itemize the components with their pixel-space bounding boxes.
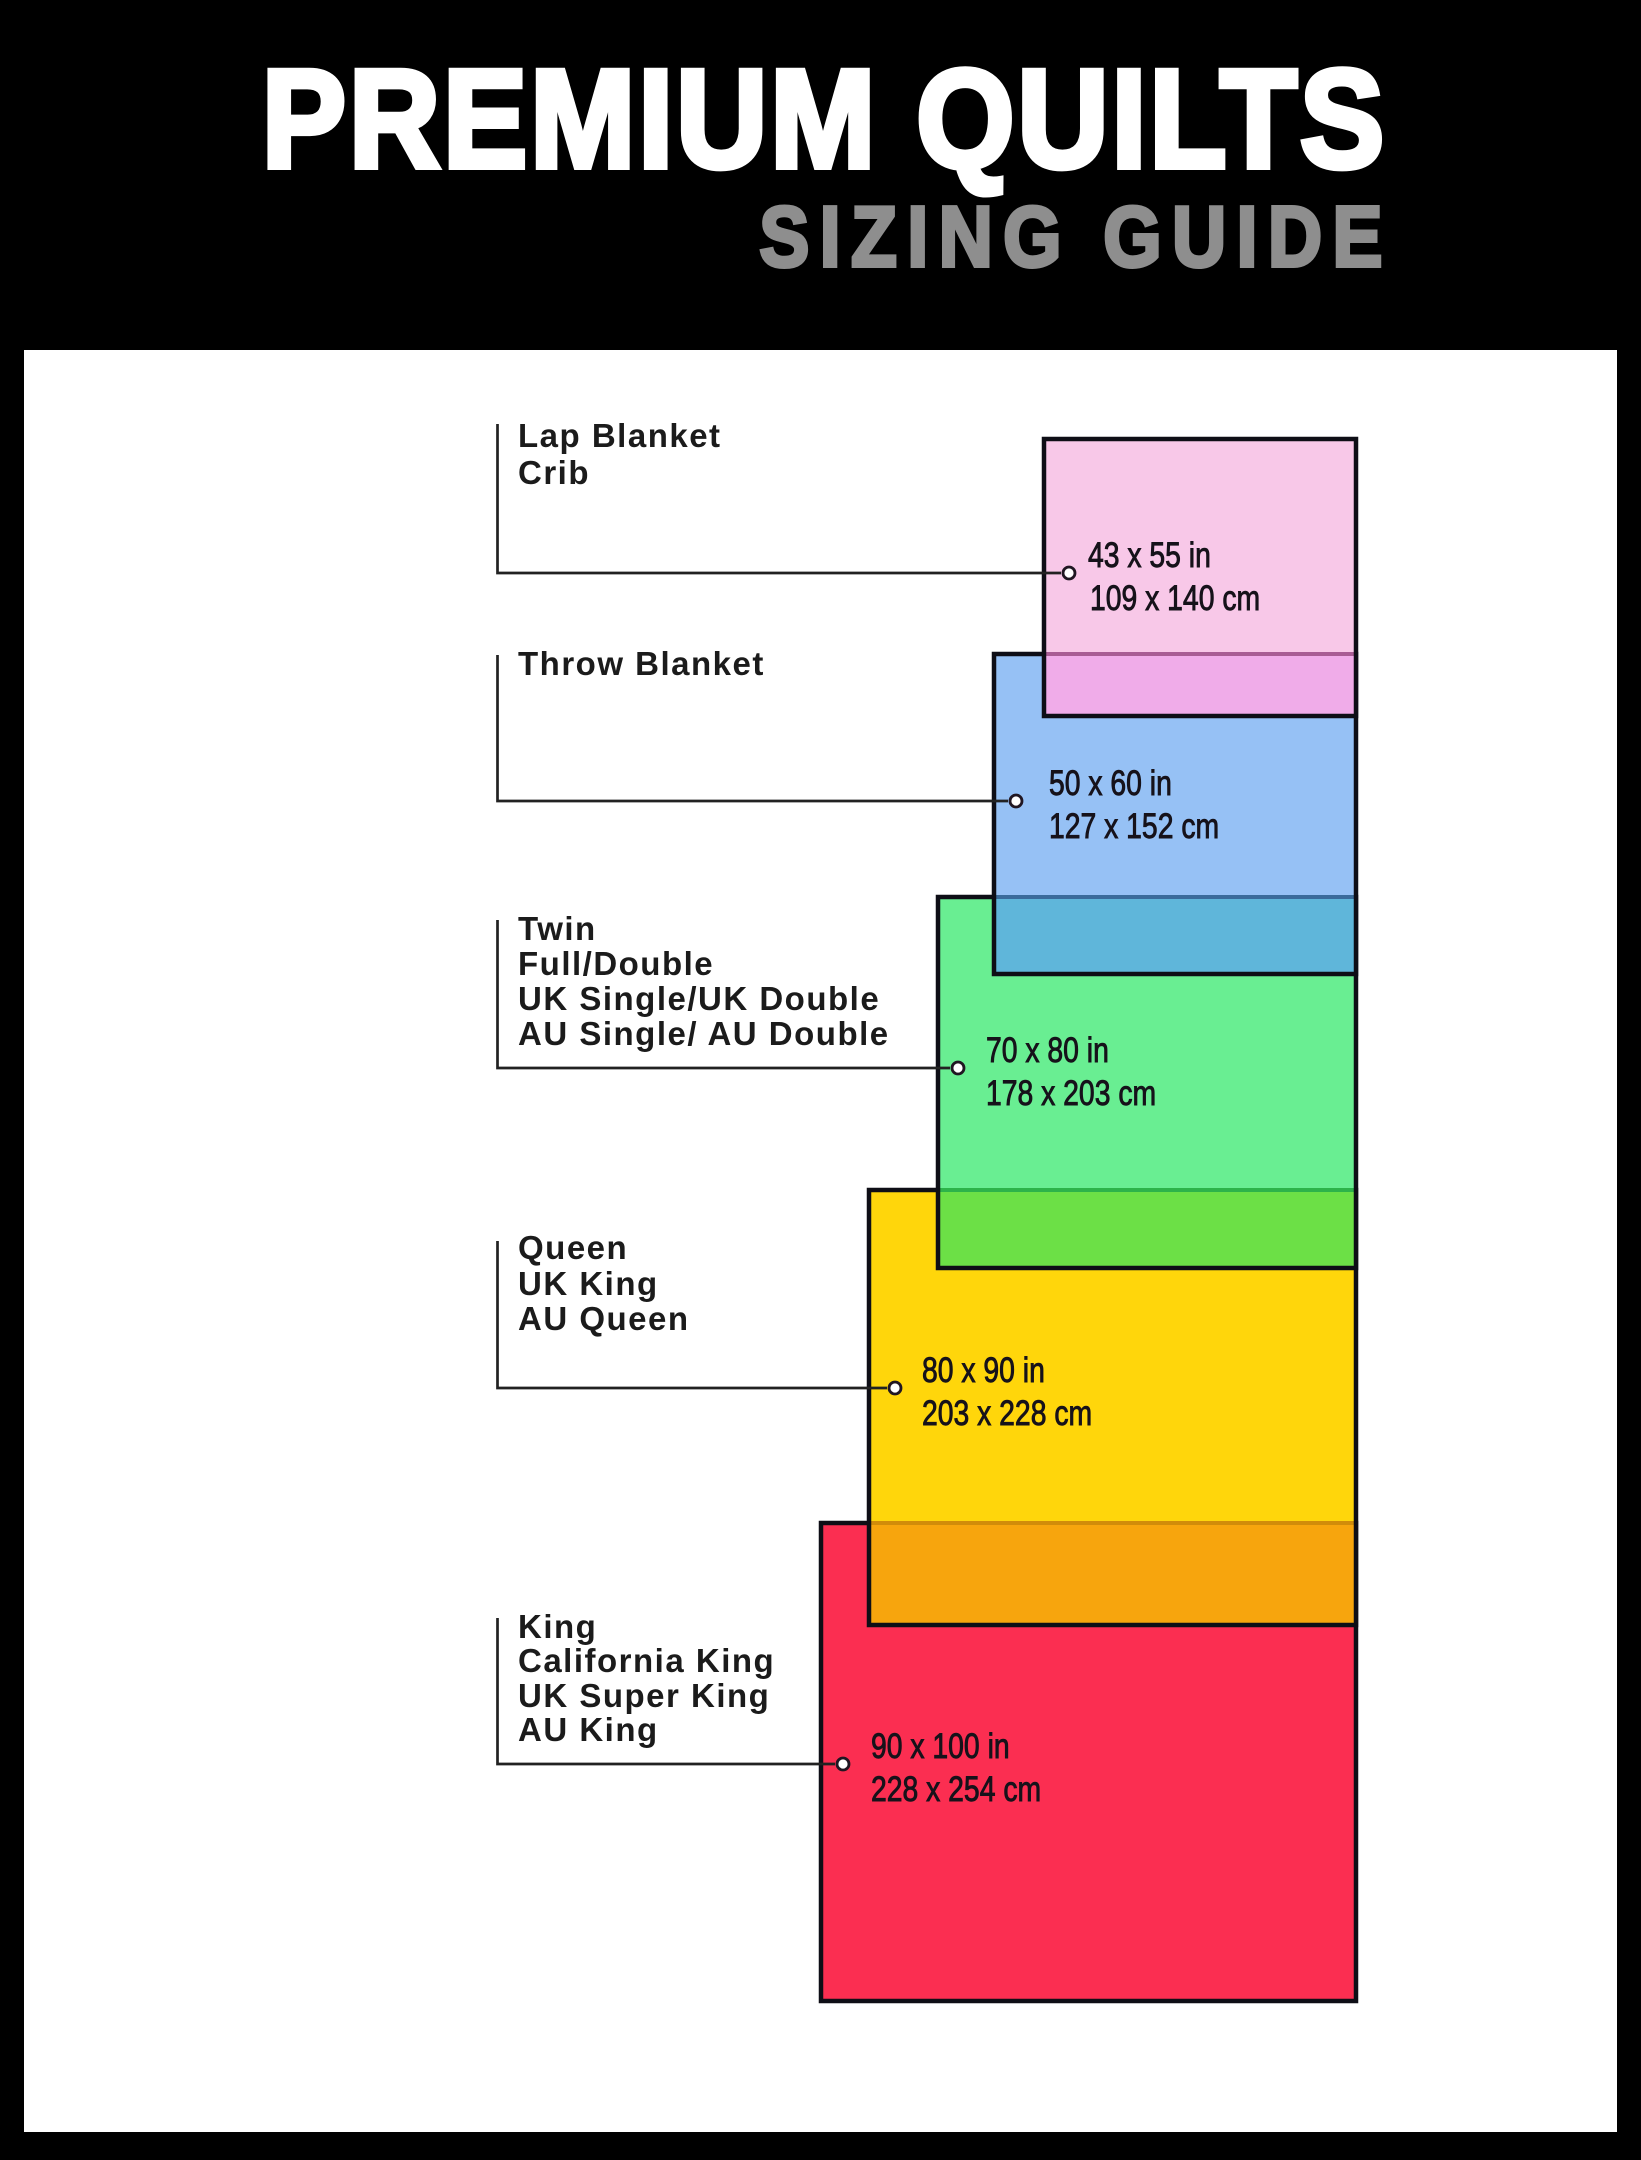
svg-text:178 x 203 cm: 178 x 203 cm: [986, 1073, 1156, 1113]
svg-text:127 x 152 cm: 127 x 152 cm: [1049, 806, 1219, 846]
svg-text:90 x 100 in: 90 x 100 in: [871, 1726, 1010, 1766]
svg-text:228 x 254 cm: 228 x 254 cm: [871, 1769, 1041, 1809]
svg-text:AU Single/ AU Double: AU Single/ AU Double: [518, 1015, 890, 1052]
svg-text:Throw Blanket: Throw Blanket: [518, 645, 765, 682]
svg-text:UK Super King: UK Super King: [518, 1677, 770, 1714]
svg-text:SIZING GUIDE: SIZING GUIDE: [759, 190, 1393, 284]
svg-text:Queen: Queen: [518, 1229, 628, 1266]
svg-text:70 x 80 in: 70 x 80 in: [986, 1030, 1109, 1070]
svg-text:43 x 55 in: 43 x 55 in: [1088, 535, 1211, 575]
svg-text:50 x 60 in: 50 x 60 in: [1049, 763, 1172, 803]
svg-text:UK Single/UK Double: UK Single/UK Double: [518, 980, 880, 1017]
svg-text:UK King: UK King: [518, 1265, 659, 1302]
svg-text:80 x 90 in: 80 x 90 in: [922, 1350, 1045, 1390]
svg-text:PREMIUM QUILTS: PREMIUM QUILTS: [262, 41, 1387, 197]
svg-text:203 x 228 cm: 203 x 228 cm: [922, 1393, 1092, 1433]
svg-text:California King: California King: [518, 1642, 775, 1679]
svg-text:Crib: Crib: [518, 454, 590, 491]
svg-text:King: King: [518, 1608, 597, 1645]
svg-text:Full/Double: Full/Double: [518, 945, 714, 982]
svg-text:AU King: AU King: [518, 1711, 659, 1748]
svg-text:AU Queen: AU Queen: [518, 1300, 690, 1337]
svg-text:Lap Blanket: Lap Blanket: [518, 417, 722, 454]
svg-text:109 x 140 cm: 109 x 140 cm: [1090, 578, 1260, 618]
svg-text:Twin: Twin: [518, 910, 597, 947]
